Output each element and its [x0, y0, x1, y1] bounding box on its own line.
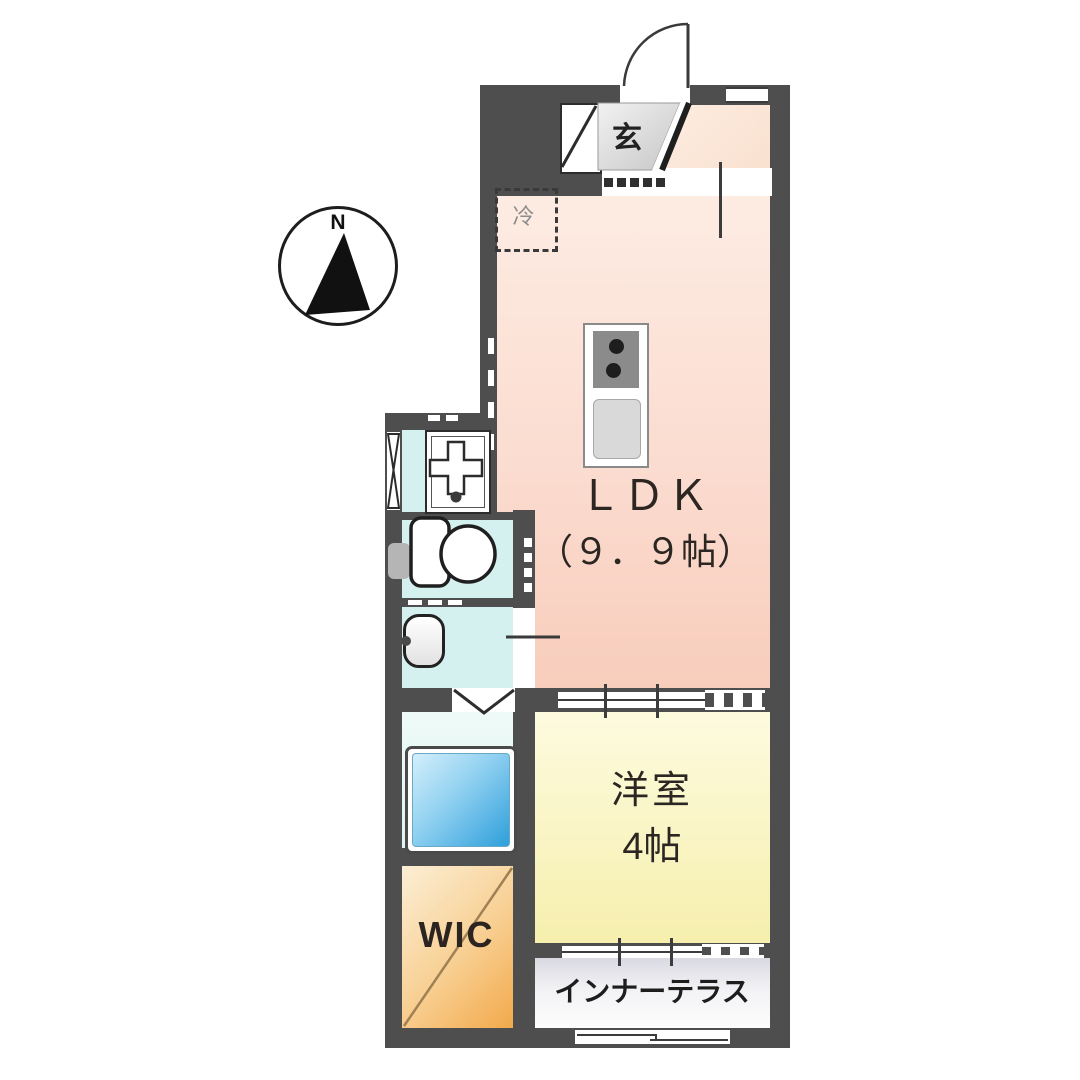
terrace-window: [575, 1030, 730, 1044]
wall-vent-dash: [488, 338, 494, 354]
door-dash: [448, 600, 462, 605]
entrance-door-arc: [624, 24, 688, 88]
bathtub-icon: [405, 746, 517, 854]
hatched-wall-upper: [705, 690, 765, 710]
kitchen-sink-icon: [593, 399, 641, 459]
bath-door-gap: [452, 688, 515, 712]
ldk-label: ＬＤＫ （９．９帖）: [500, 470, 790, 574]
step-dash: [656, 178, 665, 187]
compass-north-label: N: [281, 211, 395, 235]
vent-dash: [428, 415, 440, 421]
wall-vent-dash: [488, 402, 494, 418]
hatched-wall-lower: [702, 944, 764, 958]
ldk-name: ＬＤＫ: [500, 470, 790, 523]
slide-tick: [618, 938, 621, 966]
slide-tick: [670, 938, 673, 966]
washing-machine-pan: [425, 430, 491, 514]
toilet-wall-dash: [524, 583, 532, 592]
step-dash: [630, 178, 639, 187]
kitchen-counter: [583, 323, 649, 468]
entrance-label: 玄: [600, 120, 654, 158]
floor-plan-canvas: N 玄 冷 ＬＤＫ （９．９帖） 洋室 4帖 WIC インナーテラス: [0, 0, 1080, 1080]
sliding-door-western-terrace: [562, 946, 702, 958]
window-sash: [577, 1034, 657, 1036]
door-dash: [428, 600, 442, 605]
compass-rose: N: [278, 206, 398, 326]
stove-icon: [593, 331, 639, 388]
slide-tick: [604, 684, 607, 718]
window-sash: [655, 1034, 657, 1041]
room-toilet: [400, 518, 515, 598]
wall-vent-dash: [488, 370, 494, 386]
vent-dash: [446, 415, 458, 421]
step-dash: [617, 178, 626, 187]
sliding-door-ldk-western: [558, 692, 705, 708]
slide-tick: [656, 684, 659, 718]
entrance-step-band: [602, 168, 772, 196]
window-sash: [650, 1039, 728, 1041]
fridge-label: 冷: [495, 203, 552, 231]
entrance-inner-door-line: [719, 162, 722, 238]
window-top: [726, 87, 768, 103]
western-room-label: 洋室 4帖: [532, 768, 772, 871]
wic-label: WIC: [400, 912, 513, 957]
step-dash: [643, 178, 652, 187]
entrance-door-opening: [620, 85, 690, 105]
louver-window: [387, 432, 400, 510]
inner-terrace-label: インナーテラス: [532, 974, 772, 1009]
shoe-cabinet: [560, 103, 602, 174]
door-dash: [408, 600, 422, 605]
western-room-name: 洋室: [532, 768, 772, 816]
washroom-door: [513, 608, 535, 688]
western-room-size: 4帖: [532, 824, 772, 872]
washbasin-icon: [403, 614, 445, 668]
ldk-size: （９．９帖）: [500, 529, 790, 574]
step-dash: [604, 178, 613, 187]
